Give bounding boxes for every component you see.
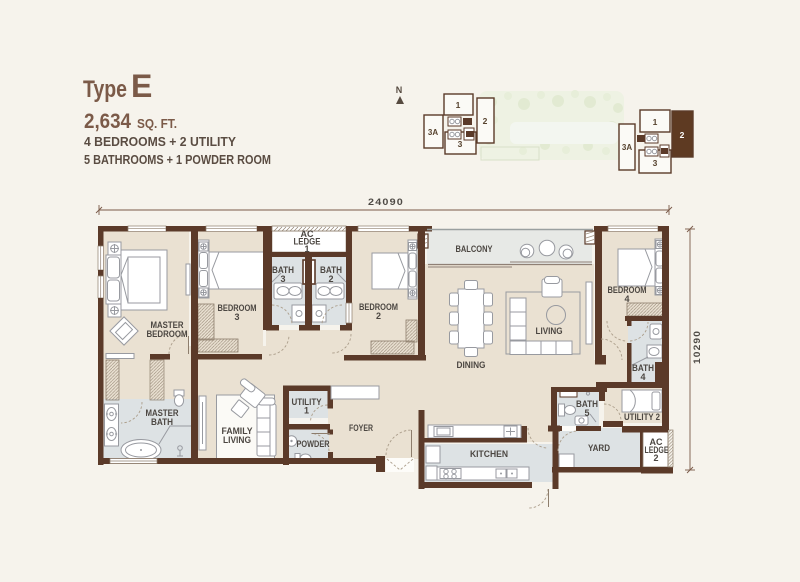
svg-text:KITCHEN: KITCHEN (470, 449, 508, 459)
svg-text:BEDROOM: BEDROOM (147, 329, 188, 339)
svg-text:2: 2 (653, 453, 658, 463)
svg-text:10290: 10290 (692, 330, 702, 364)
svg-text:5 BATHROOMS + 1 POWDER ROOM: 5 BATHROOMS + 1 POWDER ROOM (84, 153, 271, 167)
svg-text:1: 1 (456, 100, 461, 110)
svg-text:24090: 24090 (368, 197, 404, 207)
svg-text:BATH: BATH (151, 417, 173, 427)
svg-text:SQ. FT.: SQ. FT. (137, 117, 177, 131)
svg-text:YARD: YARD (588, 443, 610, 453)
svg-text:E: E (131, 68, 152, 104)
svg-text:2: 2 (483, 116, 488, 126)
svg-text:3A: 3A (622, 143, 632, 152)
svg-text:BALCONY: BALCONY (456, 244, 493, 254)
svg-text:2,634: 2,634 (84, 110, 131, 133)
svg-text:POWDER: POWDER (297, 439, 330, 449)
svg-text:LIVING: LIVING (223, 435, 251, 445)
svg-text:N: N (396, 85, 403, 95)
svg-text:1: 1 (304, 244, 309, 254)
svg-text:2: 2 (376, 311, 381, 321)
svg-text:2: 2 (328, 274, 333, 284)
svg-text:Type: Type (83, 76, 127, 103)
svg-text:4 BEDROOMS + 2 UTILITY: 4 BEDROOMS + 2 UTILITY (84, 135, 237, 149)
svg-text:3: 3 (234, 312, 239, 322)
svg-text:3A: 3A (428, 128, 438, 137)
svg-text:DINING: DINING (457, 360, 486, 370)
svg-text:LIVING: LIVING (536, 326, 563, 336)
svg-text:2: 2 (680, 130, 685, 140)
svg-text:1: 1 (304, 406, 309, 416)
svg-text:1: 1 (653, 117, 658, 127)
svg-text:4: 4 (624, 294, 629, 304)
svg-text:FOYER: FOYER (349, 423, 373, 433)
svg-text:4: 4 (640, 372, 645, 382)
svg-text:UTILITY 2: UTILITY 2 (624, 412, 660, 422)
svg-text:3: 3 (653, 158, 658, 168)
svg-text:3: 3 (458, 139, 463, 149)
svg-text:5: 5 (584, 408, 589, 418)
svg-text:3: 3 (280, 274, 285, 284)
